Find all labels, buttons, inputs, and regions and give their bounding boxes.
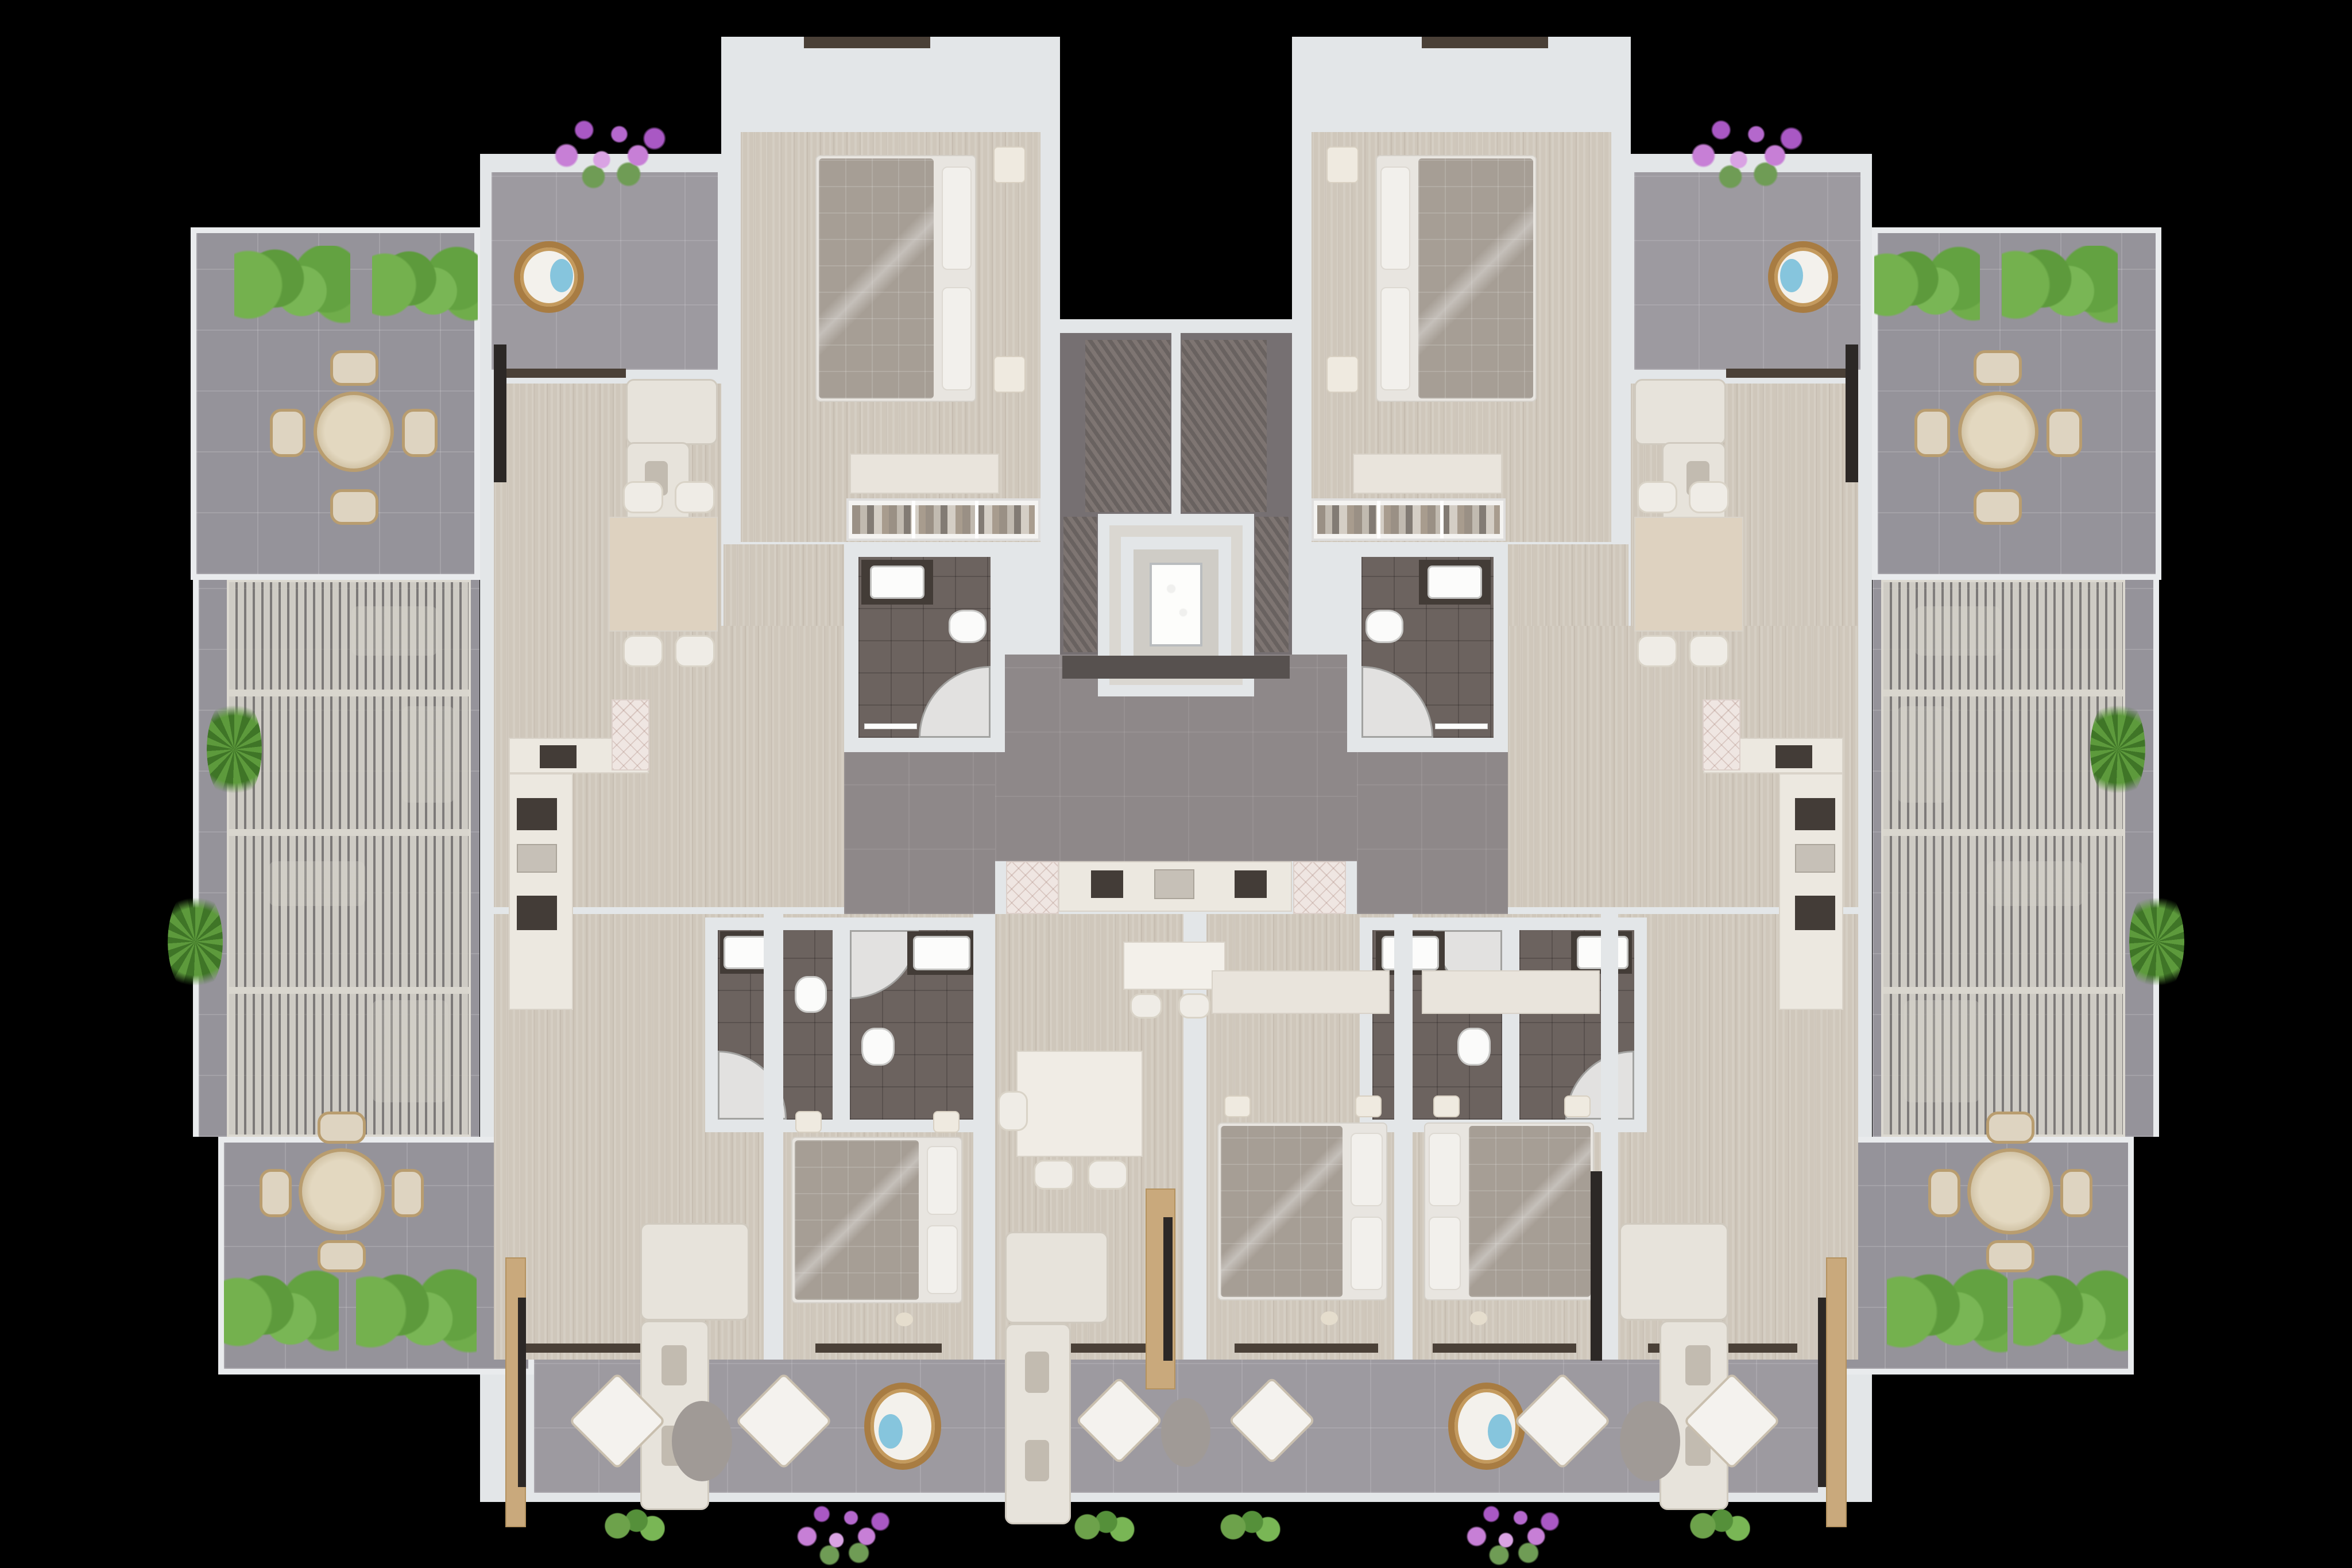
window-sill <box>1422 37 1548 48</box>
hedge-plants <box>1887 1269 2007 1355</box>
elevator-cab-glass <box>1150 563 1202 646</box>
flower-planter <box>1462 1492 1560 1566</box>
hedge-plants <box>234 246 350 324</box>
green-planter <box>602 1497 665 1549</box>
hallway-right-arm <box>1357 738 1508 914</box>
wall-tv <box>1846 344 1858 482</box>
hedge-plants <box>2002 246 2118 324</box>
sofa-cushion <box>1685 1345 1711 1385</box>
partition-wall <box>1394 914 1413 1360</box>
terrace-chair <box>260 1169 292 1217</box>
blanket <box>795 1140 919 1300</box>
partition-wall <box>973 914 995 1360</box>
nightstand <box>933 1111 960 1133</box>
green-planter <box>1687 1497 1750 1549</box>
elevator-landing-mat <box>1062 656 1290 679</box>
pergola-beam <box>1883 690 2123 696</box>
sofa-l-shaped <box>1619 1223 1728 1321</box>
dining-chair <box>623 635 663 667</box>
cooktop <box>1775 745 1812 768</box>
pillow <box>927 1225 958 1294</box>
dining-chair <box>675 635 715 667</box>
bar-stool <box>1178 993 1210 1019</box>
terrace-chair <box>402 409 438 457</box>
tufted-bench <box>1006 861 1059 914</box>
terrace-chair <box>1974 489 2022 525</box>
pergola-beam <box>1883 829 2123 836</box>
palm-plant <box>2129 887 2184 996</box>
pillow <box>1429 1217 1461 1290</box>
palm-plant <box>2090 695 2145 804</box>
pergola-beam <box>229 829 469 836</box>
open-wardrobe <box>1312 498 1506 541</box>
sofa-l-shaped <box>1005 1323 1071 1524</box>
pergola-beam <box>229 987 469 994</box>
decor-dot <box>1321 1311 1338 1325</box>
terrace-chair <box>1914 409 1950 457</box>
bar-stool <box>1130 993 1162 1019</box>
toilet <box>861 1028 895 1066</box>
sofa-l-shaped <box>626 379 718 445</box>
nightstand <box>1433 1095 1460 1117</box>
sofa-cushion <box>661 1345 687 1385</box>
egg-chair <box>1768 241 1838 313</box>
dining-chair <box>1637 481 1677 513</box>
toilet <box>949 610 987 643</box>
wardrobe-divider <box>975 501 978 539</box>
tv-console <box>1826 1257 1847 1527</box>
terrace-chair <box>1974 350 2022 386</box>
sofa-l-shaped <box>1005 1232 1108 1323</box>
hedge-plants <box>372 246 478 324</box>
terrace-chair <box>1986 1240 2034 1272</box>
nightstand <box>1326 146 1359 183</box>
palm-plant <box>168 887 223 996</box>
nightstand <box>993 146 1026 183</box>
egg-chair <box>864 1383 941 1470</box>
tufted-bench <box>612 699 649 771</box>
towel-rail <box>1435 723 1488 729</box>
decor-dot <box>896 1313 913 1326</box>
sofa-l-shaped <box>640 1223 749 1321</box>
wall-tv <box>1591 1171 1602 1361</box>
oven <box>1795 798 1835 830</box>
dining-chair <box>675 481 715 513</box>
dining-chair <box>1034 1160 1074 1190</box>
pillow <box>1380 167 1410 270</box>
tufted-bench <box>1703 699 1740 771</box>
dining-table <box>609 517 718 632</box>
palm-plant <box>207 695 262 804</box>
coffee-table <box>1620 1401 1680 1481</box>
dresser <box>850 454 999 494</box>
towel-rail <box>864 723 917 729</box>
double-bed <box>815 155 976 402</box>
egg-chair <box>514 241 584 313</box>
cooktop <box>1235 870 1267 898</box>
kitchen-sink <box>1795 844 1835 873</box>
hedge-plants <box>1874 246 1980 324</box>
hedge-plants <box>2013 1269 2128 1355</box>
double-bed <box>1217 1122 1387 1300</box>
nightstand <box>1224 1095 1251 1117</box>
nightstand <box>993 356 1026 393</box>
hall-top-right-floor <box>1506 544 1628 626</box>
stair-return-left <box>1063 517 1097 652</box>
hanging-clothes <box>1317 505 1500 534</box>
round-terrace-table <box>1967 1148 2053 1234</box>
closet-unit <box>1422 970 1600 1014</box>
stair-flight-right <box>1182 340 1267 512</box>
pergola-beam <box>1883 987 2123 994</box>
nightstand <box>1326 356 1359 393</box>
dining-chair <box>998 1091 1028 1131</box>
green-planter <box>1217 1500 1281 1549</box>
hedge-plants <box>356 1269 477 1355</box>
double-bed <box>1424 1122 1594 1300</box>
wall-tv <box>494 344 506 482</box>
tufted-bench <box>1293 861 1346 914</box>
oven <box>517 798 557 830</box>
egg-chair <box>1448 1383 1525 1470</box>
sink <box>913 936 970 970</box>
dining-table <box>1634 517 1743 632</box>
balcony-threshold <box>1726 369 1852 378</box>
pillow <box>1429 1133 1461 1206</box>
window-sill <box>1235 1344 1378 1353</box>
wardrobe-divider <box>1440 501 1444 539</box>
pergola-roof-right <box>1881 580 2125 1137</box>
pergola-beam <box>229 690 469 696</box>
blanket <box>819 158 934 398</box>
tv <box>518 1298 526 1487</box>
pillow <box>927 1146 958 1215</box>
nightstand <box>1355 1095 1382 1117</box>
partition-wall <box>1601 914 1618 1360</box>
terrace-chair <box>1928 1169 1960 1217</box>
dining-chair <box>1689 481 1729 513</box>
toilet <box>1365 610 1403 643</box>
terrace-chair <box>2047 409 2082 457</box>
pergola-roof-left <box>227 580 471 1137</box>
round-terrace-table <box>314 392 394 472</box>
egg-chair-cushion <box>1780 259 1803 292</box>
balcony-threshold <box>500 369 626 378</box>
dining-chair <box>1689 635 1729 667</box>
terrace-chair <box>2060 1169 2092 1217</box>
wardrobe-divider <box>1377 501 1380 539</box>
terrace-chair <box>330 350 378 386</box>
sink <box>870 566 924 599</box>
terrace-chair <box>330 489 378 525</box>
pillow <box>942 287 972 390</box>
dining-chair <box>1088 1160 1128 1190</box>
blanket <box>1221 1126 1343 1297</box>
sofa-cushion <box>1025 1352 1049 1393</box>
sofa-l-shaped <box>1634 379 1726 445</box>
stair-return-right <box>1255 517 1289 652</box>
stair-divider-wall <box>1171 333 1181 517</box>
open-wardrobe <box>846 498 1040 541</box>
nightstand <box>795 1111 822 1133</box>
kitchen-sink <box>1154 869 1194 899</box>
terrace-chair <box>318 1112 366 1144</box>
flower-planter <box>792 1492 890 1566</box>
blanket <box>1469 1126 1591 1297</box>
hallway-left-arm <box>844 738 995 914</box>
hanging-clothes <box>852 505 1035 534</box>
sofa-cushion <box>1025 1440 1049 1481</box>
cooktop <box>540 745 577 768</box>
terrace-chair <box>318 1240 366 1272</box>
kitchen-sink <box>517 844 557 873</box>
toilet <box>795 976 827 1013</box>
coffee-table <box>1161 1398 1210 1467</box>
dining-chair <box>1637 635 1677 667</box>
dining-chair <box>623 481 663 513</box>
fridge <box>517 896 557 930</box>
terrace-chair <box>270 409 305 457</box>
hedge-plants <box>224 1269 339 1355</box>
window-sill <box>804 37 930 48</box>
decor-dot <box>1470 1311 1487 1325</box>
wardrobe-divider <box>912 501 915 539</box>
bar-table <box>1123 942 1225 990</box>
floor-plan-render <box>0 0 2352 1568</box>
tv <box>1818 1298 1826 1487</box>
double-bed <box>1376 155 1537 402</box>
toilet <box>1457 1028 1491 1066</box>
pillow <box>1351 1217 1383 1290</box>
terrace-chair <box>1986 1112 2034 1144</box>
blanket <box>1418 158 1533 398</box>
closet-unit <box>1212 970 1390 1014</box>
flower-planter <box>1686 104 1803 189</box>
stair-flight-left <box>1085 340 1170 512</box>
round-terrace-table <box>1958 392 2038 472</box>
cooktop <box>1091 870 1123 898</box>
green-planter <box>1071 1500 1135 1549</box>
flower-planter <box>549 104 666 189</box>
double-bed <box>791 1137 962 1303</box>
window-sill <box>815 1344 942 1353</box>
dresser <box>1353 454 1502 494</box>
tv <box>1163 1217 1173 1361</box>
partition-wall <box>764 914 783 1360</box>
dining-table-marble <box>1016 1051 1143 1157</box>
pillow <box>1351 1133 1383 1206</box>
fridge <box>1795 896 1835 930</box>
coffee-table <box>672 1401 732 1481</box>
sink <box>1428 566 1482 599</box>
round-terrace-table <box>299 1148 385 1234</box>
terrace-chair <box>392 1169 424 1217</box>
hall-top-left-floor <box>724 544 846 626</box>
pillow <box>1380 287 1410 390</box>
egg-chair-cushion <box>550 259 573 292</box>
nightstand <box>1564 1095 1591 1117</box>
pillow <box>942 167 972 270</box>
egg-chair-cushion <box>1488 1414 1512 1449</box>
window-sill <box>1433 1344 1576 1353</box>
egg-chair-cushion <box>879 1414 903 1449</box>
